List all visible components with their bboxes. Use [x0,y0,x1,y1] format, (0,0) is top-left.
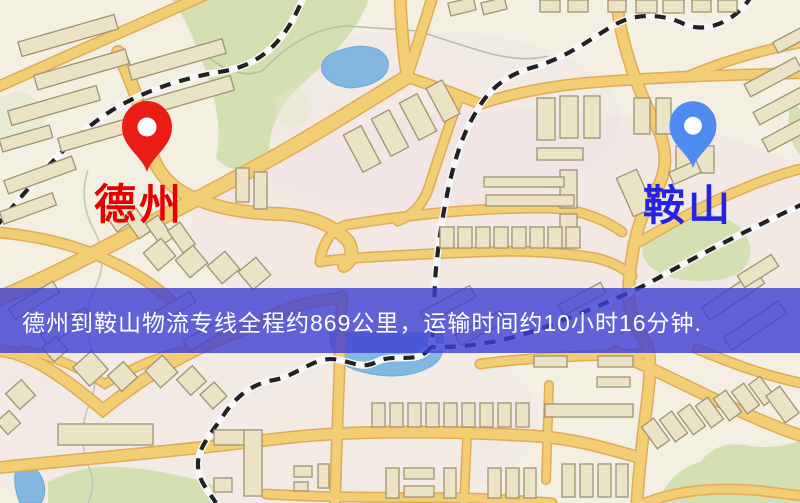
map-artwork: 德州 鞍山 [0,0,800,503]
route-info-text: 德州到鞍山物流专线全程约869公里，运输时间约10小时16分钟. [0,304,702,338]
origin-pin-hole [138,118,157,137]
origin-label: 德州 [94,181,184,228]
route-info-banner: 德州到鞍山物流专线全程约869公里，运输时间约10小时16分钟. [0,288,800,353]
destination-label: 鞍山 [643,182,733,229]
destination-pin-hole [684,117,702,135]
map-canvas[interactable]: 德州 鞍山 德州到鞍山物流专线全程约869公里，运输时间约10小时16分钟. [0,0,800,503]
